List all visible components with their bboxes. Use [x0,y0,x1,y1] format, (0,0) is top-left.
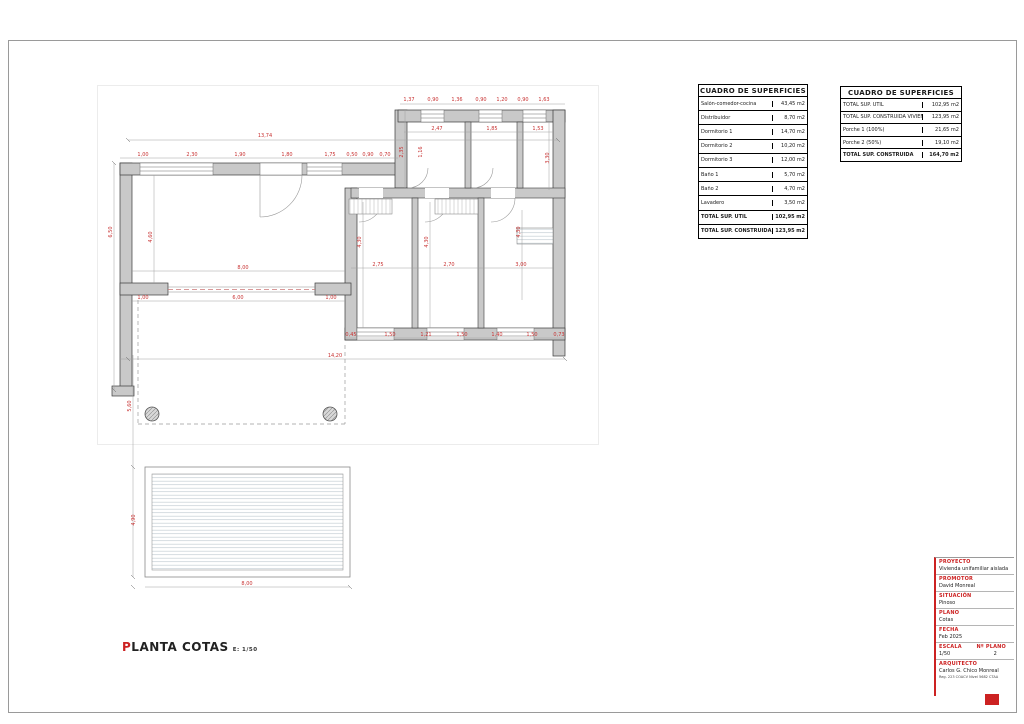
dimension-label: 2,70 [443,262,454,268]
row-value: 102,95 m2 [772,214,807,220]
surface-table-vivienda: CUADRO DE SUPERFICIES Salón-comedor-coci… [698,84,808,239]
dimension-label: 0,73 [553,332,564,338]
dimension-label: 0,70 [379,152,390,158]
row-value: 102,95 m2 [922,102,961,108]
dimension-label: 0,90 [362,152,373,158]
row-label: Porche 1 (100%) [841,127,922,133]
dimension-label: 1,53 [532,126,543,132]
row-label: TOTAL SUP. CONSTRUIDA VIVIENDA [699,228,772,234]
title-block-scale-row: ESCALA 1/50 Nº PLANO 2 [936,643,1014,660]
row-label: Lavadero [699,200,772,206]
dimension-label: 2,30 [186,152,197,158]
table-row: Distribuidor8,70 m2 [699,111,807,125]
dimension-label: 1,16 [418,146,424,157]
dimension-label: 1,80 [281,152,292,158]
table-row: Salón-comedor-cocina43,45 m2 [699,97,807,111]
surface-table-title: CUADRO DE SUPERFICIES [841,87,961,99]
arquitecto-label: ARQUITECTO [939,661,1014,667]
dimension-label: 2,35 [399,146,405,157]
title-block: PROYECTOVivienda unifamiliar aisladaPROM… [934,557,1014,696]
porch-outline [138,300,345,424]
dimension-label: 1,50 [526,332,537,338]
dimension-label: 1,21 [420,332,431,338]
dimension-label: 1,63 [538,97,549,103]
table-row: Porche 1 (100%)21,65 m2 [841,124,961,137]
dimension-label: 3,30 [545,152,551,163]
dimension-label: 1,75 [324,152,335,158]
surface-table-title: CUADRO DE SUPERFICIES [699,85,807,97]
table-row: TOTAL SUP. CONSTRUIDA164,70 m2 [841,149,961,161]
dimension-label: 1,00 [137,152,148,158]
porch-columns [145,407,337,421]
table-row: Lavadero3,50 m2 [699,196,807,210]
escala-value: 1/50 [939,651,977,657]
dimension-label: 1,50 [456,332,467,338]
row-value: 4,70 m2 [772,186,807,192]
wardrobes [349,199,553,244]
pool [145,467,350,577]
row-label: Dormitorio 1 [699,129,772,135]
table-row: Baño 24,70 m2 [699,182,807,196]
table-row: Dormitorio 114,70 m2 [699,125,807,139]
dimension-label: 1,00 [325,295,336,301]
field-label: PROMOTOR [939,576,1014,582]
row-value: 19,10 m2 [922,140,961,146]
surface-table-rows: Salón-comedor-cocina43,45 m2Distribuidor… [699,97,807,238]
row-value: 123,95 m2 [922,114,961,120]
num-plano-label: Nº PLANO [977,644,1015,650]
dimension-label: 0,90 [517,97,528,103]
arquitecto-value: Carlos G. Chico Monreal [939,668,1014,674]
dimension-label: 4,90 [131,514,137,525]
dimension-label: 0,50 [346,152,357,158]
dimension-label: 1,90 [234,152,245,158]
title-block-field: PLANOCotas [936,609,1014,626]
dimension-label: 14,20 [328,353,342,359]
field-value: Feb 2025 [939,634,1014,640]
escala-label: ESCALA [939,644,977,650]
row-value: 10,20 m2 [772,143,807,149]
row-label: Baño 1 [699,172,772,178]
sliding-door [168,287,315,292]
field-label: PROYECTO [939,559,1014,565]
row-value: 5,70 m2 [772,172,807,178]
dimension-label: 5,60 [127,400,133,411]
row-label: TOTAL SUP. ÚTIL [699,214,772,220]
row-label: Salón-comedor-cocina [699,101,772,107]
dimension-label: 2,75 [372,262,383,268]
row-label: Porche 2 (50%) [841,140,922,146]
title-block-architect: ARQUITECTO Carlos G. Chico Monreal Reg. … [936,660,1014,681]
row-value: 21,65 m2 [922,127,961,133]
row-value: 12,00 m2 [772,157,807,163]
row-label: TOTAL SUP. CONSTRUIDA VIVIENDA [841,114,922,120]
table-row: Porche 2 (50%)19,10 m2 [841,137,961,150]
title-block-field: PROMOTORDavid Monreal [936,575,1014,592]
dimension-label: 1,00 [137,295,148,301]
num-plano-value: 2 [977,651,1015,657]
row-label: Dormitorio 2 [699,143,772,149]
caption-text: LANTA COTAS [131,640,228,654]
title-block-field: SITUACIÓNPinoso [936,592,1014,609]
caption-first-letter: P [122,640,131,654]
table-row: Dormitorio 312,00 m2 [699,154,807,168]
dimension-label: 8,00 [241,581,252,587]
dimension-label: 1,40 [491,332,502,338]
dimension-label: 0,90 [427,97,438,103]
dimension-label: 1,50 [384,332,395,338]
dimension-label: 8,00 [237,265,248,271]
field-label: PLANO [939,610,1014,616]
arquitecto-registration: Reg. 223 COACV Nivel 5682 CTAA [939,675,1014,679]
dimension-label: 4,30 [424,236,430,247]
dimension-label: 3,00 [515,262,526,268]
title-block-field: FECHAFeb 2025 [936,626,1014,643]
row-label: TOTAL SUP. ÚTIL [841,102,922,108]
dimension-label: 13,74 [258,133,272,139]
row-label: Baño 2 [699,186,772,192]
red-stamp-square [985,694,999,705]
table-row: TOTAL SUP. ÚTIL102,95 m2 [699,211,807,225]
dimension-label: 4,30 [357,236,363,247]
title-block-fields: PROYECTOVivienda unifamiliar aisladaPROM… [936,558,1014,643]
row-label: Distribuidor [699,115,772,121]
plan-caption: PLANTA COTASE: 1/50 [122,640,258,654]
table-row: TOTAL SUP. CONSTRUIDA VIVIENDA123,95 m2 [699,225,807,238]
title-block-field: PROYECTOVivienda unifamiliar aislada [936,558,1014,575]
table-row: TOTAL SUP. CONSTRUIDA VIVIENDA123,95 m2 [841,112,961,125]
row-value: 3,50 m2 [772,200,807,206]
field-value: Pinoso [939,600,1014,606]
dimension-label: 6,50 [108,226,114,237]
field-label: FECHA [939,627,1014,633]
dimension-label: 1,36 [451,97,462,103]
table-row: Dormitorio 210,20 m2 [699,140,807,154]
field-value: Cotas [939,617,1014,623]
dimension-label: 0,45 [345,332,356,338]
dimension-label: 1,37 [403,97,414,103]
row-value: 8,70 m2 [772,115,807,121]
row-value: 43,45 m2 [772,101,807,107]
row-label: Dormitorio 3 [699,157,772,163]
row-value: 14,70 m2 [772,129,807,135]
row-value: 123,95 m2 [772,228,807,234]
field-value: David Monreal [939,583,1014,589]
table-row: TOTAL SUP. ÚTIL102,95 m2 [841,99,961,112]
dimension-label: 4,60 [148,231,154,242]
field-label: SITUACIÓN [939,593,1014,599]
dimension-label: 2,47 [431,126,442,132]
dimension-label: 1,20 [496,97,507,103]
windows [140,110,546,340]
caption-scale: E: 1/50 [233,647,258,653]
surface-table-totales: CUADRO DE SUPERFICIES TOTAL SUP. ÚTIL102… [840,86,962,162]
table-row: Baño 15,70 m2 [699,168,807,182]
drawing-sheet: 13,741,002,301,901,801,750,500,900,702,3… [0,0,1024,724]
row-value: 164,70 m2 [922,152,961,158]
dimension-label: 1,85 [486,126,497,132]
dimension-label: 6,00 [232,295,243,301]
dimension-label: 4,30 [516,226,522,237]
row-label: TOTAL SUP. CONSTRUIDA [841,152,922,158]
dimension-label: 0,90 [475,97,486,103]
surface-table-rows: TOTAL SUP. ÚTIL102,95 m2TOTAL SUP. CONST… [841,99,961,161]
field-value: Vivienda unifamiliar aislada [939,566,1014,572]
